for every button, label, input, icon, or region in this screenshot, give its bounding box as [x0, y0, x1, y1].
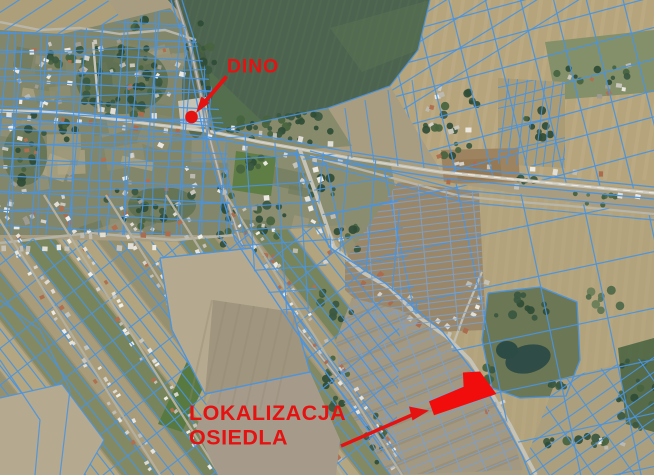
svg-text:DINO: DINO — [227, 56, 279, 78]
svg-text:LOKALIZACJA: LOKALIZACJA — [189, 401, 346, 425]
svg-text:OSIEDLA: OSIEDLA — [189, 426, 288, 450]
